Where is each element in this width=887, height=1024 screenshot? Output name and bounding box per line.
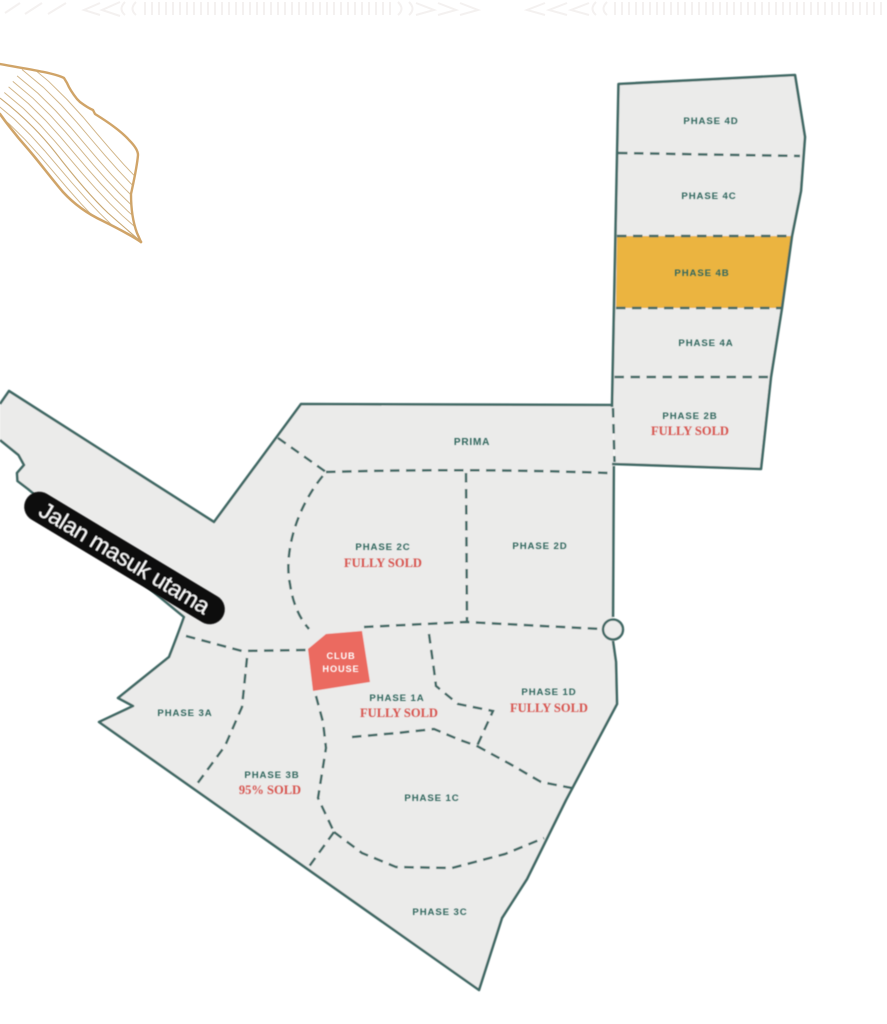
svg-text:CLUB: CLUB xyxy=(326,651,355,661)
svg-text:PHASE 3C: PHASE 3C xyxy=(412,907,467,918)
svg-text:PHASE 2B: PHASE 2B xyxy=(662,411,717,422)
svg-text:FULLY SOLD: FULLY SOLD xyxy=(510,701,588,715)
svg-text:HOUSE: HOUSE xyxy=(322,664,359,674)
svg-text:95% SOLD: 95% SOLD xyxy=(239,783,301,797)
svg-text:PHASE 1A: PHASE 1A xyxy=(369,693,424,704)
svg-text:PHASE 1C: PHASE 1C xyxy=(404,793,459,804)
svg-text:PHASE 3A: PHASE 3A xyxy=(157,708,212,719)
svg-text:PHASE 3B: PHASE 3B xyxy=(244,770,299,781)
svg-text:FULLY SOLD: FULLY SOLD xyxy=(651,424,729,438)
svg-text:FULLY SOLD: FULLY SOLD xyxy=(344,556,422,570)
svg-text:PHASE 1D: PHASE 1D xyxy=(521,687,576,698)
svg-text:PHASE 4B: PHASE 4B xyxy=(674,268,729,279)
svg-text:PHASE 2D: PHASE 2D xyxy=(512,541,567,552)
svg-text:FULLY SOLD: FULLY SOLD xyxy=(360,706,438,720)
svg-text:PRIMA: PRIMA xyxy=(454,437,490,448)
svg-text:PHASE 4D: PHASE 4D xyxy=(683,116,738,127)
svg-text:PHASE 2C: PHASE 2C xyxy=(355,542,410,553)
svg-text:PHASE 4A: PHASE 4A xyxy=(678,338,733,349)
svg-text:PHASE 4C: PHASE 4C xyxy=(681,191,736,202)
